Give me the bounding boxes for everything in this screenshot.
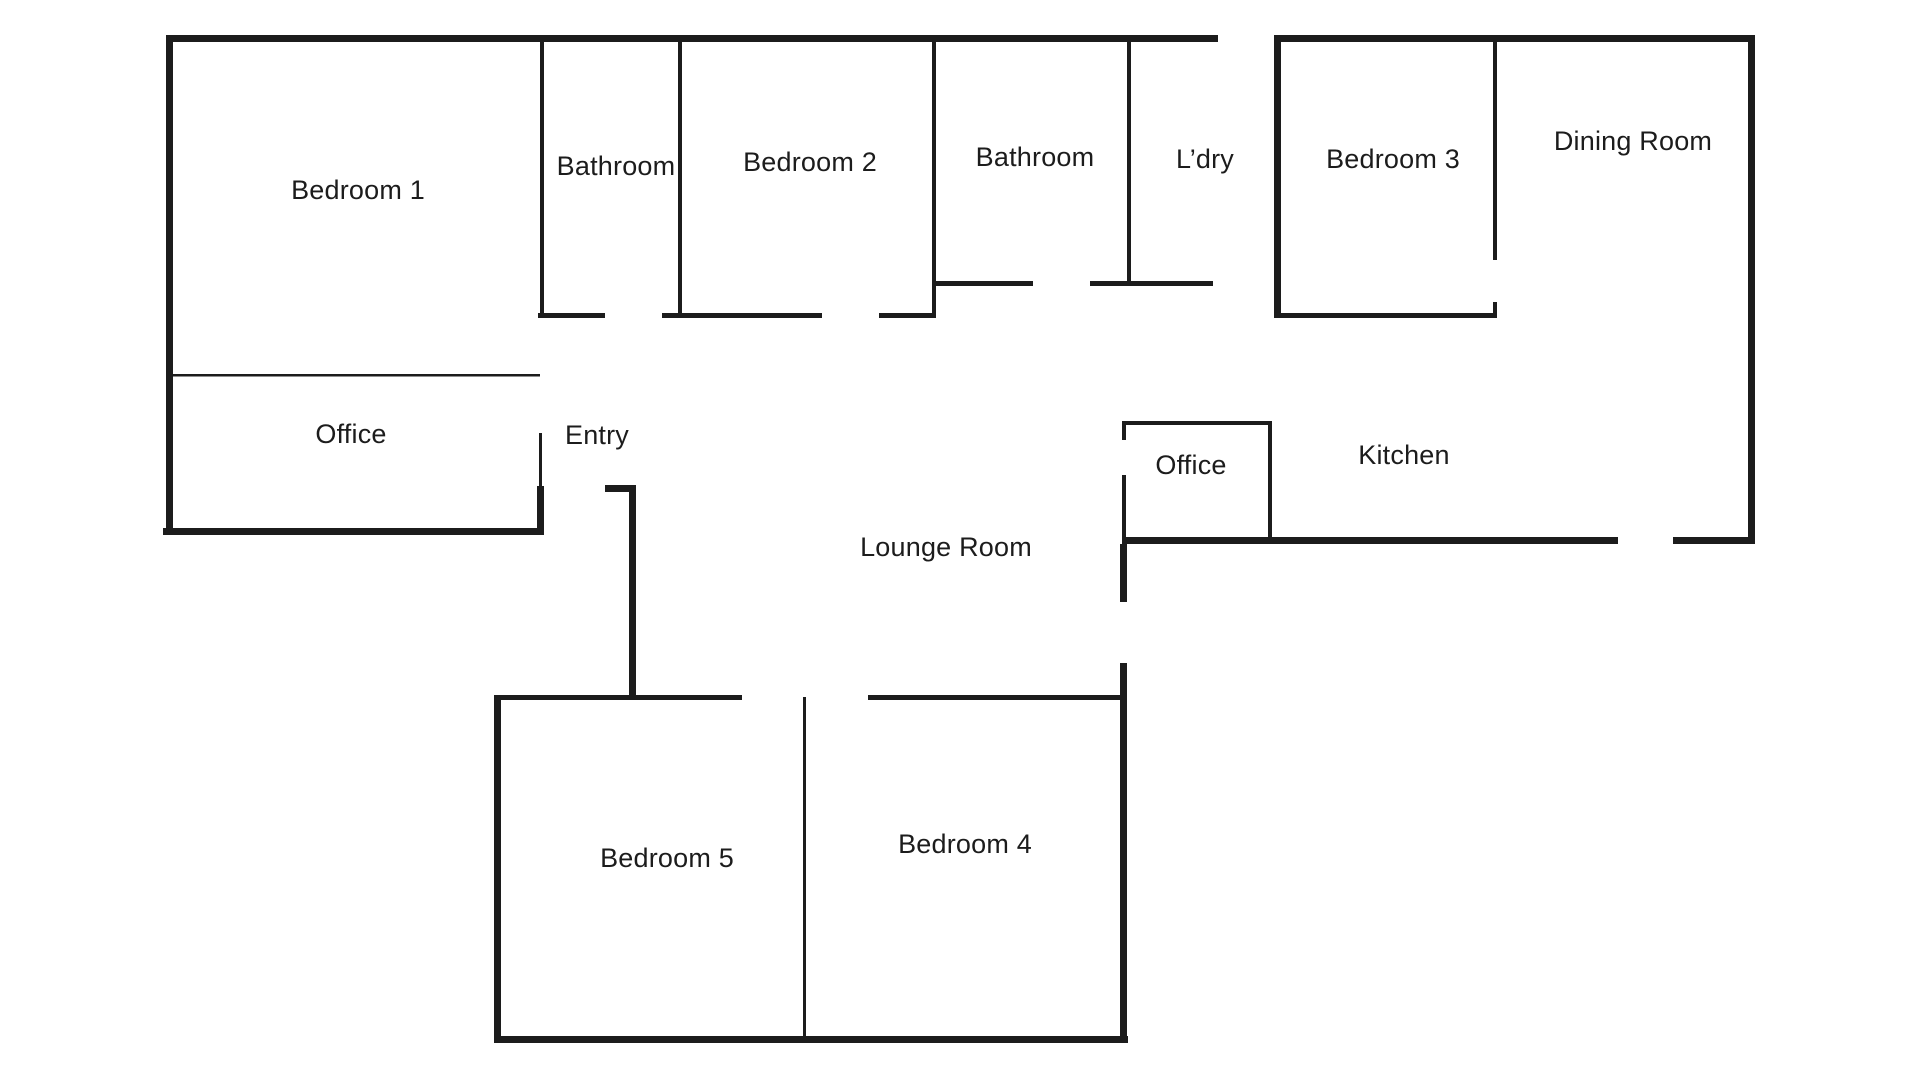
wall-top-right-segment [1274, 35, 1755, 42]
wall-office-right-left-stub [1122, 421, 1126, 440]
wall-bedroom3-left [1274, 42, 1281, 318]
wall-bedroom5-top [494, 695, 742, 700]
wall-office-left-corner-stub [537, 486, 544, 535]
wall-bottom-exterior [494, 1036, 1128, 1043]
wall-bedroom2-right [932, 42, 936, 316]
room-label-kitchen: Kitchen [1358, 441, 1449, 471]
wall-entry-thin-vertical [539, 433, 542, 488]
room-label-entry: Entry [565, 421, 629, 451]
wall-bathroom1-left [540, 42, 544, 316]
wall-bedroom4-5-divider [803, 697, 806, 1038]
room-label-lounge-room: Lounge Room [860, 533, 1032, 563]
room-label-bedroom-1: Bedroom 1 [291, 176, 425, 206]
wall-entry-vertical [629, 485, 636, 698]
room-label-office-right: Office [1155, 451, 1226, 481]
wall-office-right-left-lower [1122, 475, 1126, 541]
wall-office-left-top-line [170, 374, 540, 377]
wall-bedroom5-left [494, 695, 501, 1043]
wall-bedroom3-bottom [1274, 313, 1497, 318]
room-label-laundry: L’dry [1176, 145, 1234, 175]
wall-bedroom2-bottom-left [662, 313, 822, 318]
wall-kitchen-bottom-left [1122, 537, 1618, 544]
room-label-office-left: Office [315, 420, 386, 450]
room-label-bathroom-2: Bathroom [976, 143, 1095, 173]
wall-bathroom1-right [678, 42, 682, 316]
wall-bathroom2-bottom [936, 281, 1033, 286]
wall-lounge-right-upper [1120, 544, 1127, 602]
wall-kitchen-bottom-right [1673, 537, 1755, 544]
wall-laundry-left [1127, 42, 1131, 286]
wall-office-right-right [1268, 421, 1272, 544]
room-label-dining-room: Dining Room [1554, 127, 1712, 157]
wall-bathroom1-bottom [538, 313, 605, 318]
wall-laundry-bottom [1090, 281, 1213, 286]
room-label-bedroom-2: Bedroom 2 [743, 148, 877, 178]
wall-right-exterior [1748, 35, 1755, 544]
wall-office-left-bottom [163, 528, 544, 535]
wall-left-exterior [166, 35, 173, 535]
wall-lounge-bedroom4-right [1120, 663, 1127, 1043]
wall-bedroom4-top [868, 695, 1126, 700]
room-label-bathroom-1: Bathroom [557, 152, 676, 182]
wall-bedroom2-bottom-right [879, 313, 936, 318]
wall-top-left-segment [166, 35, 1218, 42]
floor-plan-canvas: Bedroom 1 Bathroom Bedroom 2 Bathroom L’… [0, 0, 1920, 1080]
room-label-bedroom-3: Bedroom 3 [1326, 145, 1460, 175]
wall-office-right-top [1122, 421, 1272, 425]
room-label-bedroom-4: Bedroom 4 [898, 830, 1032, 860]
wall-bedroom3-right-upper [1493, 42, 1497, 260]
room-label-bedroom-5: Bedroom 5 [600, 844, 734, 874]
